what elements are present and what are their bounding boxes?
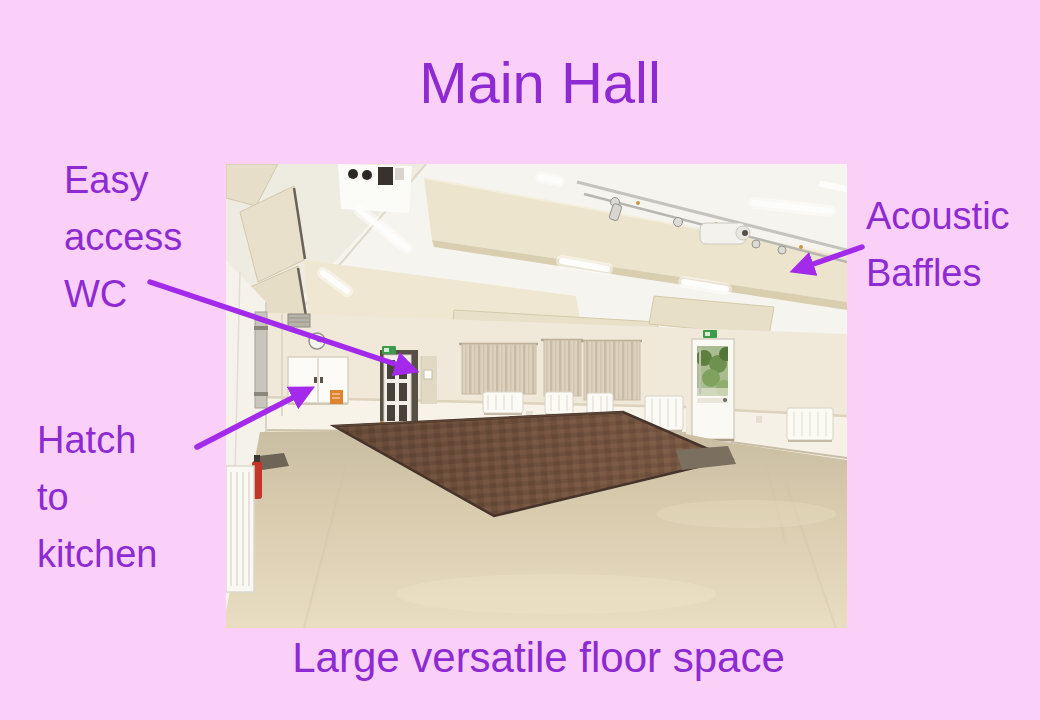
- exterior-door: [692, 330, 734, 440]
- hall-photo: [226, 164, 847, 628]
- slide-title: Main Hall: [40, 48, 1040, 118]
- wall-clock: [309, 333, 325, 349]
- annotation-label-easy-access-wc: Easy access WC: [64, 152, 182, 323]
- curtained-window: [541, 340, 642, 400]
- wall-vent: [288, 314, 310, 327]
- heater-vent-icon: [362, 170, 372, 180]
- left-radiator: [226, 466, 254, 592]
- ceiling-heater-unit: [338, 164, 412, 213]
- slide-caption: Large versatile floor space: [230, 632, 847, 684]
- door-handle-icon: [723, 398, 727, 402]
- flue-pipe: [254, 312, 268, 408]
- annotation-label-hatch-to-kitchen: Hatch to kitchen: [37, 412, 157, 583]
- slide-background: Main Hall Easy access WC Acoustic Baffle…: [0, 0, 1040, 720]
- notice-poster: [330, 390, 343, 404]
- annotation-label-acoustic-baffles: Acoustic Baffles: [866, 188, 1010, 302]
- heater-vent-icon: [348, 169, 358, 179]
- curtained-window: [459, 344, 538, 394]
